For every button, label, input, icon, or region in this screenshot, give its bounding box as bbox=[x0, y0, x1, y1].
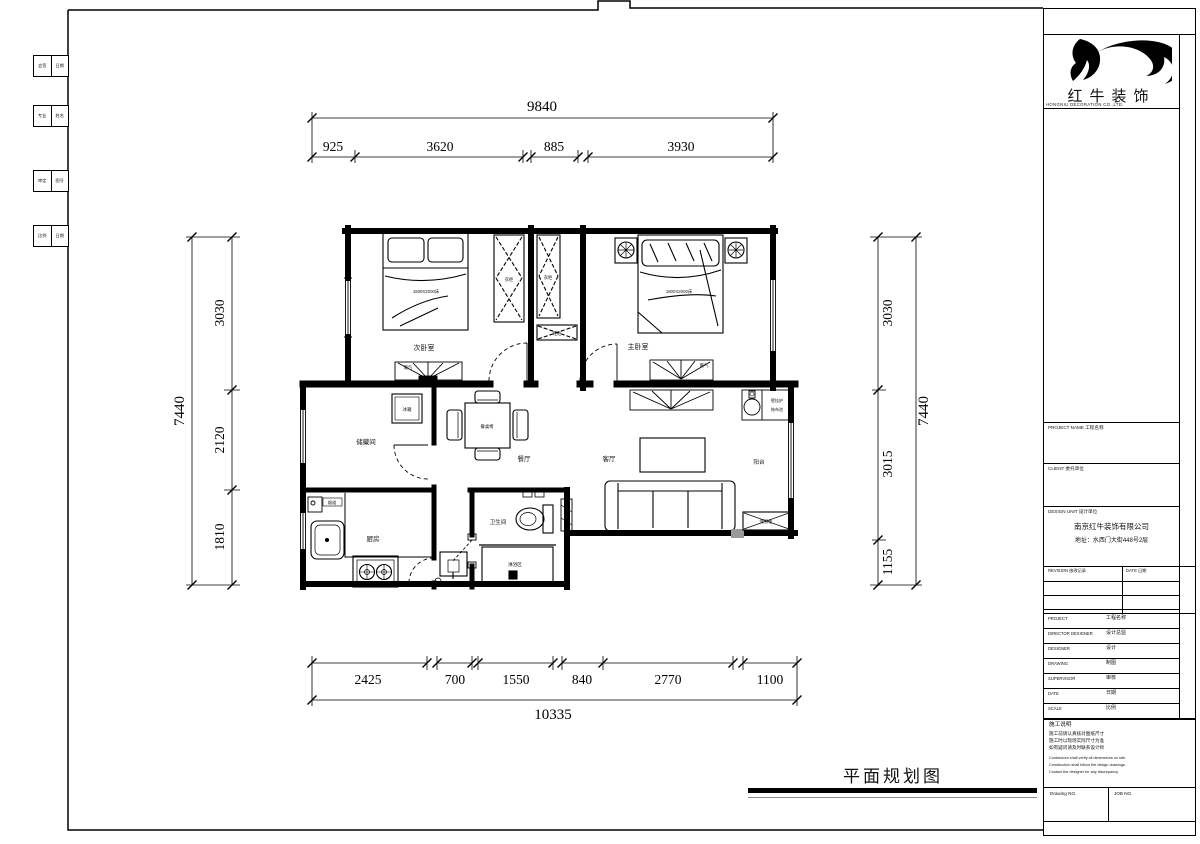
notes-cn-3: 如有疑问请及时联系设计师 bbox=[1049, 744, 1104, 751]
hall-water-heater bbox=[435, 552, 467, 584]
dim-top-4: 3930 bbox=[668, 139, 695, 154]
master-bed-size-label: 1800X2000床 bbox=[666, 288, 693, 295]
drawing-title: 平面规划图 bbox=[748, 762, 1038, 787]
signoff-label: 日期 bbox=[52, 226, 69, 246]
company-logo-subtext: HONGNIU DECORATION CO.,LTD. bbox=[1046, 102, 1179, 107]
kitchen-sink bbox=[311, 521, 344, 559]
dining-set-label: 餐桌椅 bbox=[481, 423, 495, 430]
row-supervisor-cn: 审核 bbox=[1106, 675, 1116, 682]
dim-right-3: 1155 bbox=[880, 549, 895, 576]
dim-top-2: 3620 bbox=[427, 139, 454, 154]
revision-date-header: DATE 日期 bbox=[1126, 568, 1146, 574]
signoff-label: 会签 bbox=[34, 56, 52, 76]
room-label-master: 主卧室 bbox=[628, 342, 649, 351]
caption-underline-thin bbox=[748, 797, 1037, 798]
notes-en-3: Contact the designer for any discrepancy… bbox=[1049, 769, 1119, 775]
dim-bot-total: 10335 bbox=[534, 707, 572, 723]
sofa bbox=[605, 481, 735, 531]
section-project-label: PROJECT NAME 工程名称 bbox=[1048, 424, 1104, 431]
company-name: 南京红牛装饰有限公司 bbox=[1044, 521, 1179, 532]
row-supervisor-en: SUPERVISOR bbox=[1048, 676, 1075, 682]
notes-en-2: Construction shall follow the design dra… bbox=[1049, 762, 1126, 768]
bath-door bbox=[452, 534, 476, 568]
wardrobe-label-2: 衣柜 bbox=[544, 274, 553, 281]
row-scale-en: SCALE bbox=[1048, 706, 1062, 712]
dim-left-3: 1810 bbox=[212, 523, 227, 550]
radiator-living bbox=[630, 390, 713, 410]
room-label-bedroom2: 次卧室 bbox=[414, 343, 435, 352]
drawing-no-label: Drawing NO. bbox=[1050, 790, 1076, 797]
number-cells-divider bbox=[1108, 787, 1109, 821]
revision-no-header: REVISION 修改记录 bbox=[1048, 568, 1086, 574]
revision-divider bbox=[1122, 566, 1123, 613]
room-label-living: 客厅 bbox=[603, 454, 617, 463]
radiator-label-bedroom2: 暖气 bbox=[404, 364, 413, 371]
sheet-frame bbox=[68, 1, 1043, 830]
dim-right-total: 7440 bbox=[916, 396, 932, 426]
notes-title: 施工说明 bbox=[1049, 721, 1071, 729]
row-director-cn: 设计总监 bbox=[1106, 630, 1126, 637]
dim-bot-5: 2770 bbox=[655, 672, 682, 687]
signoff-box-1: 会签日期 bbox=[33, 55, 69, 77]
bedroom2-bed bbox=[383, 233, 468, 330]
row-scale-cn: 比例 bbox=[1106, 705, 1116, 712]
bedroom2-door-arc bbox=[489, 343, 527, 381]
signoff-box-2: 专业姓名 bbox=[33, 105, 69, 127]
company-logo-icon bbox=[1062, 37, 1172, 87]
coffee-table bbox=[640, 438, 705, 472]
dim-left-total: 7440 bbox=[172, 396, 188, 426]
section-client-label: CLIENT 委托单位 bbox=[1048, 465, 1084, 472]
storage-door-arc bbox=[394, 445, 428, 479]
dimension-lines bbox=[186, 112, 922, 706]
dim-bot-2: 700 bbox=[445, 672, 466, 687]
signoff-label: 比例 bbox=[34, 226, 52, 246]
title-block: 红牛装饰 HONGNIU DECORATION CO.,LTD. PROJECT… bbox=[1043, 8, 1196, 836]
row-drawing-cn: 制图 bbox=[1106, 660, 1116, 667]
balcony-cabinet-label: 储物柜 bbox=[760, 518, 774, 525]
bed2-size-label: 1500X2000床 bbox=[413, 288, 440, 295]
job-no-label: JOB NO. bbox=[1114, 790, 1132, 797]
row-date-en: DATE bbox=[1048, 691, 1059, 697]
row-project-en: PROJECT bbox=[1048, 616, 1068, 622]
toilet bbox=[516, 505, 553, 533]
dim-top-total: 9840 bbox=[527, 99, 557, 115]
mop-sink-label: 拖布池 bbox=[771, 406, 783, 412]
company-address: 地址：水西门大街448号2层 bbox=[1044, 537, 1179, 546]
dimension-ticks bbox=[188, 114, 921, 705]
dim-bot-3: 1550 bbox=[503, 672, 530, 687]
shower-label: 淋浴区 bbox=[508, 561, 522, 568]
dim-bot-6: 1100 bbox=[757, 672, 784, 687]
dim-bot-1: 2425 bbox=[355, 672, 382, 687]
notes-en-1: Contractors shall verify all dimensions … bbox=[1049, 755, 1126, 761]
dim-top-1: 925 bbox=[323, 139, 344, 154]
room-label-dining: 餐厅 bbox=[518, 454, 532, 463]
signoff-label: 专业 bbox=[34, 106, 52, 126]
room-label-storage: 储藏间 bbox=[356, 437, 376, 446]
room-label-balcony: 阳台 bbox=[753, 458, 765, 466]
boiler-label: 壁挂炉 bbox=[771, 397, 783, 403]
signoff-box-4: 比例日期 bbox=[33, 225, 69, 247]
flue-label: 烟道 bbox=[328, 499, 337, 506]
dim-left-2: 2120 bbox=[212, 426, 227, 453]
master-nightstand-left bbox=[615, 238, 637, 263]
caption-underline bbox=[748, 788, 1037, 793]
row-project-cn: 工程名称 bbox=[1106, 615, 1126, 622]
row-drawing-en: DRAWING bbox=[1048, 661, 1068, 667]
entry-threshold bbox=[731, 529, 744, 538]
dim-bot-4: 840 bbox=[572, 672, 593, 687]
room-label-bath: 卫生间 bbox=[490, 518, 507, 526]
title-block-divider bbox=[1179, 34, 1180, 718]
dim-right-1: 3030 bbox=[880, 299, 895, 326]
fridge-label: 冰箱 bbox=[403, 406, 412, 413]
room-label-kitchen: 厨房 bbox=[367, 534, 380, 543]
signoff-label: 审定 bbox=[34, 171, 52, 191]
floorplan-canvas: 次卧室 1500X2000床 主卧室 1800X2000床 衣柜 衣柜 鞋柜 暖… bbox=[0, 0, 1200, 844]
notes-cn-2: 施工时以现场实际尺寸为准 bbox=[1049, 737, 1104, 744]
section-design-label: DESIGN UNIT 设计单位 bbox=[1048, 508, 1097, 515]
kitchen-door-arc bbox=[409, 558, 434, 583]
signoff-label: 图号 bbox=[52, 171, 69, 191]
row-designer-cn: 设计 bbox=[1106, 645, 1116, 652]
row-director-en: DIRECTOR DESIGNER bbox=[1048, 631, 1093, 637]
radiator-label-master: 暖气 bbox=[700, 362, 709, 369]
kitchen-flue bbox=[308, 497, 342, 512]
dim-right-2: 3015 bbox=[880, 450, 895, 477]
master-nightstand-right bbox=[725, 238, 747, 263]
dim-left-1: 3030 bbox=[212, 299, 227, 326]
row-date-cn: 日期 bbox=[1106, 690, 1116, 697]
dim-top-3: 885 bbox=[544, 139, 565, 154]
drawing-sheet: 次卧室 1500X2000床 主卧室 1800X2000床 衣柜 衣柜 鞋柜 暖… bbox=[0, 0, 1200, 844]
signoff-box-3: 审定图号 bbox=[33, 170, 69, 192]
signoff-label: 姓名 bbox=[52, 106, 69, 126]
signoff-label: 日期 bbox=[52, 56, 69, 76]
notes-cn-1: 施工前请认真核对图纸尺寸 bbox=[1049, 730, 1104, 737]
balcony-basin bbox=[742, 390, 790, 420]
shoe-cabinet-label: 鞋柜 bbox=[553, 330, 562, 337]
master-bed bbox=[638, 235, 723, 333]
row-designer-en: DESIGNER bbox=[1048, 646, 1070, 652]
kitchen-counter bbox=[345, 493, 434, 557]
wardrobe-label-1: 衣柜 bbox=[505, 276, 514, 283]
